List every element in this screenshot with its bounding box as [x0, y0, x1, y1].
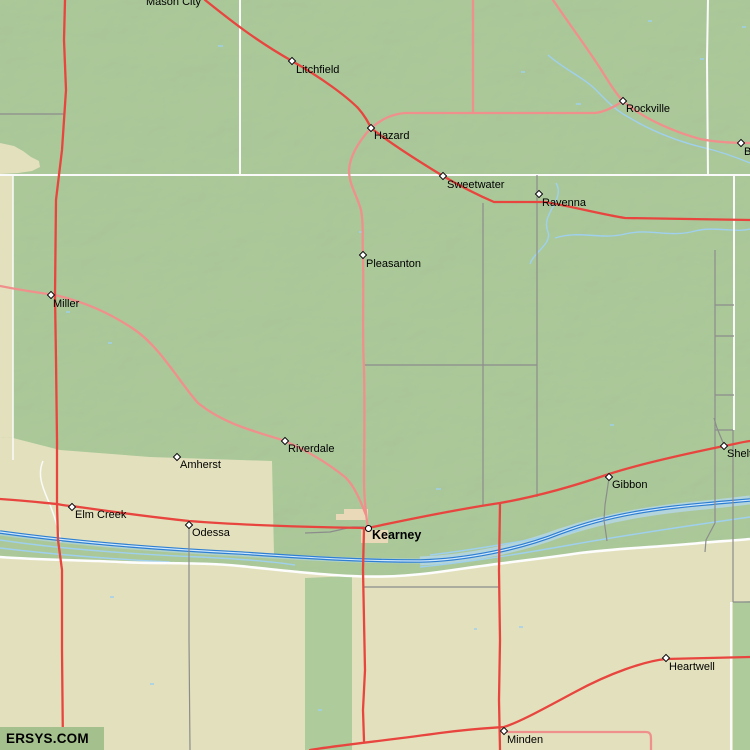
town-diamond-marker	[439, 172, 447, 180]
town-label: Heartwell	[669, 661, 715, 673]
town-label: Ravenna	[542, 197, 586, 209]
town-diamond-marker	[288, 57, 296, 65]
town-label: Miller	[53, 298, 79, 310]
watermark: ERSYS.COM	[0, 727, 104, 750]
town-label: Amherst	[180, 459, 221, 471]
town-label: Shelton	[727, 448, 750, 460]
town-label: Elm Creek	[75, 509, 126, 521]
town-label: Sweetwater	[447, 179, 504, 191]
map-canvas: Mason CityLitchfieldHazardRockvilleBSwee…	[0, 0, 750, 750]
town-label: Riverdale	[288, 443, 334, 455]
town-label: Gibbon	[612, 479, 647, 491]
town-label: Mason City	[146, 0, 201, 8]
town-label: Kearney	[372, 529, 421, 541]
town-layer: Mason CityLitchfieldHazardRockvilleBSwee…	[0, 0, 750, 750]
town-label: Odessa	[192, 527, 230, 539]
town-label: Hazard	[374, 130, 409, 142]
town-label: Pleasanton	[366, 258, 421, 270]
city-circle-marker	[365, 525, 372, 532]
town-label: B	[744, 146, 750, 158]
town-label: Litchfield	[296, 64, 339, 76]
town-label: Rockville	[626, 103, 670, 115]
town-label: Minden	[507, 734, 543, 746]
